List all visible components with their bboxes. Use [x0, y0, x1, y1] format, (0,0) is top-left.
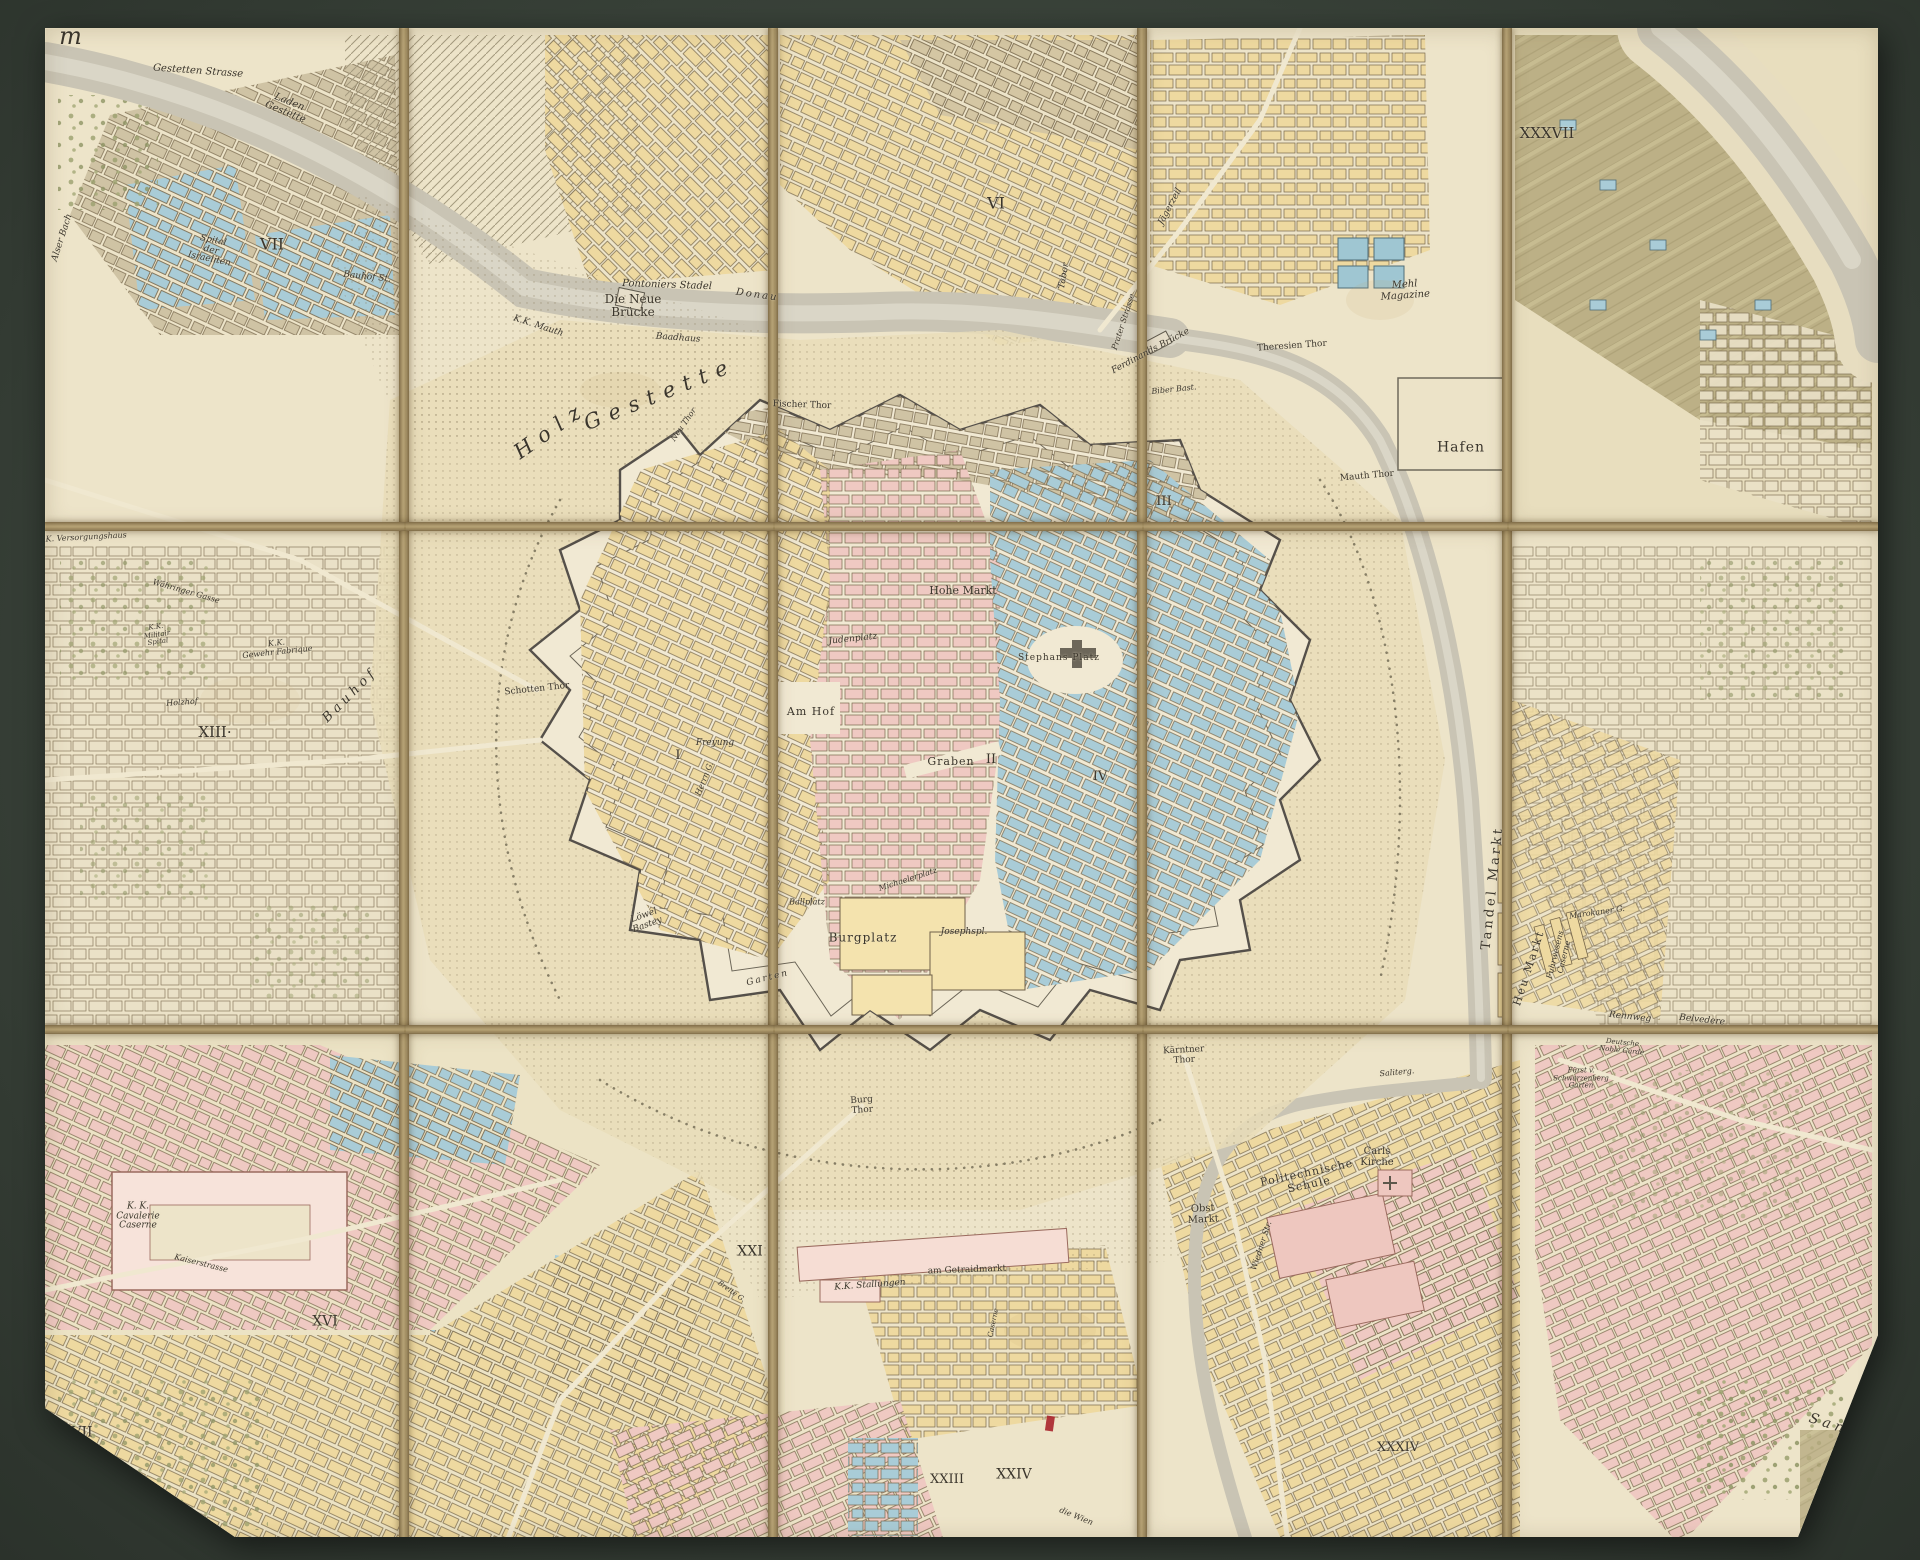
map-label: Pontoniers Stadel [622, 279, 712, 293]
map-label: Hohe Markt [929, 585, 996, 597]
map-label: Garten [746, 969, 791, 989]
map-label: III [1156, 495, 1171, 509]
map-label: Burg Thor [850, 1096, 874, 1117]
map-label: Die Neue Brücke [605, 293, 662, 319]
map-label: Obst Markt [1187, 1203, 1219, 1226]
map-label: Judenplatz [828, 633, 877, 648]
map-label: XIII· [198, 724, 231, 740]
map-label: Fischer Thor [773, 400, 832, 412]
map-label: Marokaner G. [1569, 905, 1626, 921]
map-label: Alser Bach [51, 213, 75, 263]
map-label: Josephspl. [941, 928, 988, 938]
map-label: Deutsche Noble Garde [1599, 1037, 1646, 1057]
map-label: Donau [735, 288, 779, 305]
map-label: Fürst v. Schwarzenberg Garten [1553, 1068, 1609, 1091]
map-label: Prater Strasse [1111, 293, 1137, 351]
map-label: Laden Gestette [263, 90, 311, 126]
map-label: Schotten Thor [504, 682, 570, 698]
map-label: Burgplatz [829, 932, 898, 945]
map-label: Mauth Thor [1340, 470, 1395, 484]
map-label: XXIV [996, 1467, 1032, 1482]
map-label: die Wien [1058, 1506, 1094, 1527]
map-label: K.K. Versorgungshaus [37, 531, 127, 544]
map-label: Rennweg [1608, 1011, 1651, 1025]
map-label: Gestetten Strasse [153, 63, 244, 80]
map-label: Caserne [987, 1308, 1000, 1338]
map-label: Carls Kirche [1360, 1147, 1393, 1169]
map-sheet-shadow: r mGestetten StrasseLaden GestetteSpital… [0, 0, 1920, 1560]
map-label: K.K. Mauth [512, 314, 564, 339]
map-label: Michaelerplatz [878, 866, 939, 893]
map-label: S a n d g [1807, 1411, 1871, 1445]
map-label: Baadhaus [655, 333, 700, 346]
map-label: Spital der Israeliten [187, 232, 236, 270]
map-label: IV [1093, 770, 1108, 784]
map-label: K.K. Stallungen [834, 1279, 906, 1294]
map-label: Tabor [1058, 262, 1072, 289]
map-label: XVII [61, 1425, 92, 1440]
map-label: XVI [312, 1314, 338, 1329]
map-label: r m [24, 24, 90, 50]
map-label: Neu Thor [669, 407, 698, 444]
map-label: XXXIV [1377, 1441, 1419, 1455]
map-label: VI [987, 194, 1005, 211]
map-label: XXXVII [1520, 125, 1575, 141]
map-label: Kaiserstrasse [173, 1253, 228, 1275]
map-label: Löwel Bastey [628, 907, 663, 936]
map-label: Jägerzeil [1157, 187, 1184, 227]
map-sheet: r mGestetten StrasseLaden GestetteSpital… [0, 0, 1920, 1560]
map-label: am Getraidmarkt [928, 1265, 1007, 1277]
map-label: Ballplatz [789, 899, 825, 908]
map-label: Theresien Thor [1257, 340, 1327, 355]
map-label: XXI [737, 1244, 762, 1259]
map-label: Wiedner Str. [1250, 1220, 1274, 1271]
map-label: B a u h o f [320, 668, 378, 726]
map-label: Hafen [1437, 440, 1485, 455]
map-label: Freyung [696, 739, 734, 749]
map-label: Währinger Gasse [151, 578, 220, 605]
map-label: Breite G. [716, 1280, 746, 1304]
map-label: I [675, 749, 680, 763]
map-label: Mehl Magazine [1380, 279, 1431, 304]
map-label: Gestette [581, 353, 740, 435]
map-label: Holz [510, 396, 592, 463]
map-label: K. K. Cavalerie Caserne [116, 1202, 159, 1231]
map-label: Herrn G. [694, 761, 715, 797]
map-label: K.K. Gewehr Fabrique [241, 636, 313, 661]
map-label: K.K. Militair Spital [142, 622, 171, 648]
map-label: Belvedere [1679, 1014, 1726, 1028]
map-label: Am Hof [787, 706, 835, 718]
map-label: XXIII [930, 1473, 964, 1487]
map-label: Stephans Platz [1018, 654, 1100, 664]
map-label: Politechnische Schule [1259, 1158, 1357, 1201]
map-label: Saliterg. [1379, 1067, 1414, 1079]
map-label: II [986, 753, 996, 767]
map-label: Graben [927, 756, 974, 768]
map-label: VII [260, 235, 284, 252]
map-label: Tandel Markt [1480, 825, 1507, 950]
map-label: Bauhof St. [343, 271, 392, 286]
map-label: Holzhof [166, 698, 198, 709]
map-labels-layer: r mGestetten StrasseLaden GestetteSpital… [0, 0, 1920, 1560]
map-label: Heu Markt [1511, 929, 1547, 1008]
map-label: Kärntner Thor [1163, 1045, 1205, 1067]
map-label: Fuhrwesens Caserne [1546, 930, 1575, 982]
map-label: Biber Bast. [1151, 383, 1197, 396]
